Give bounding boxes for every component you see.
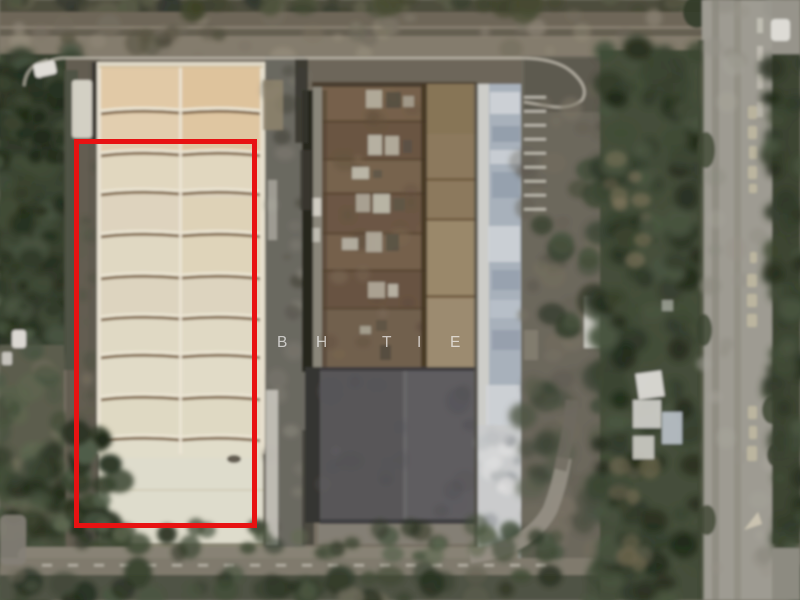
svg-text:B: B: [277, 334, 287, 351]
svg-text:I: I: [417, 334, 421, 351]
svg-text:T: T: [382, 334, 392, 351]
svg-text:H: H: [316, 334, 327, 351]
svg-text:E: E: [450, 334, 460, 351]
